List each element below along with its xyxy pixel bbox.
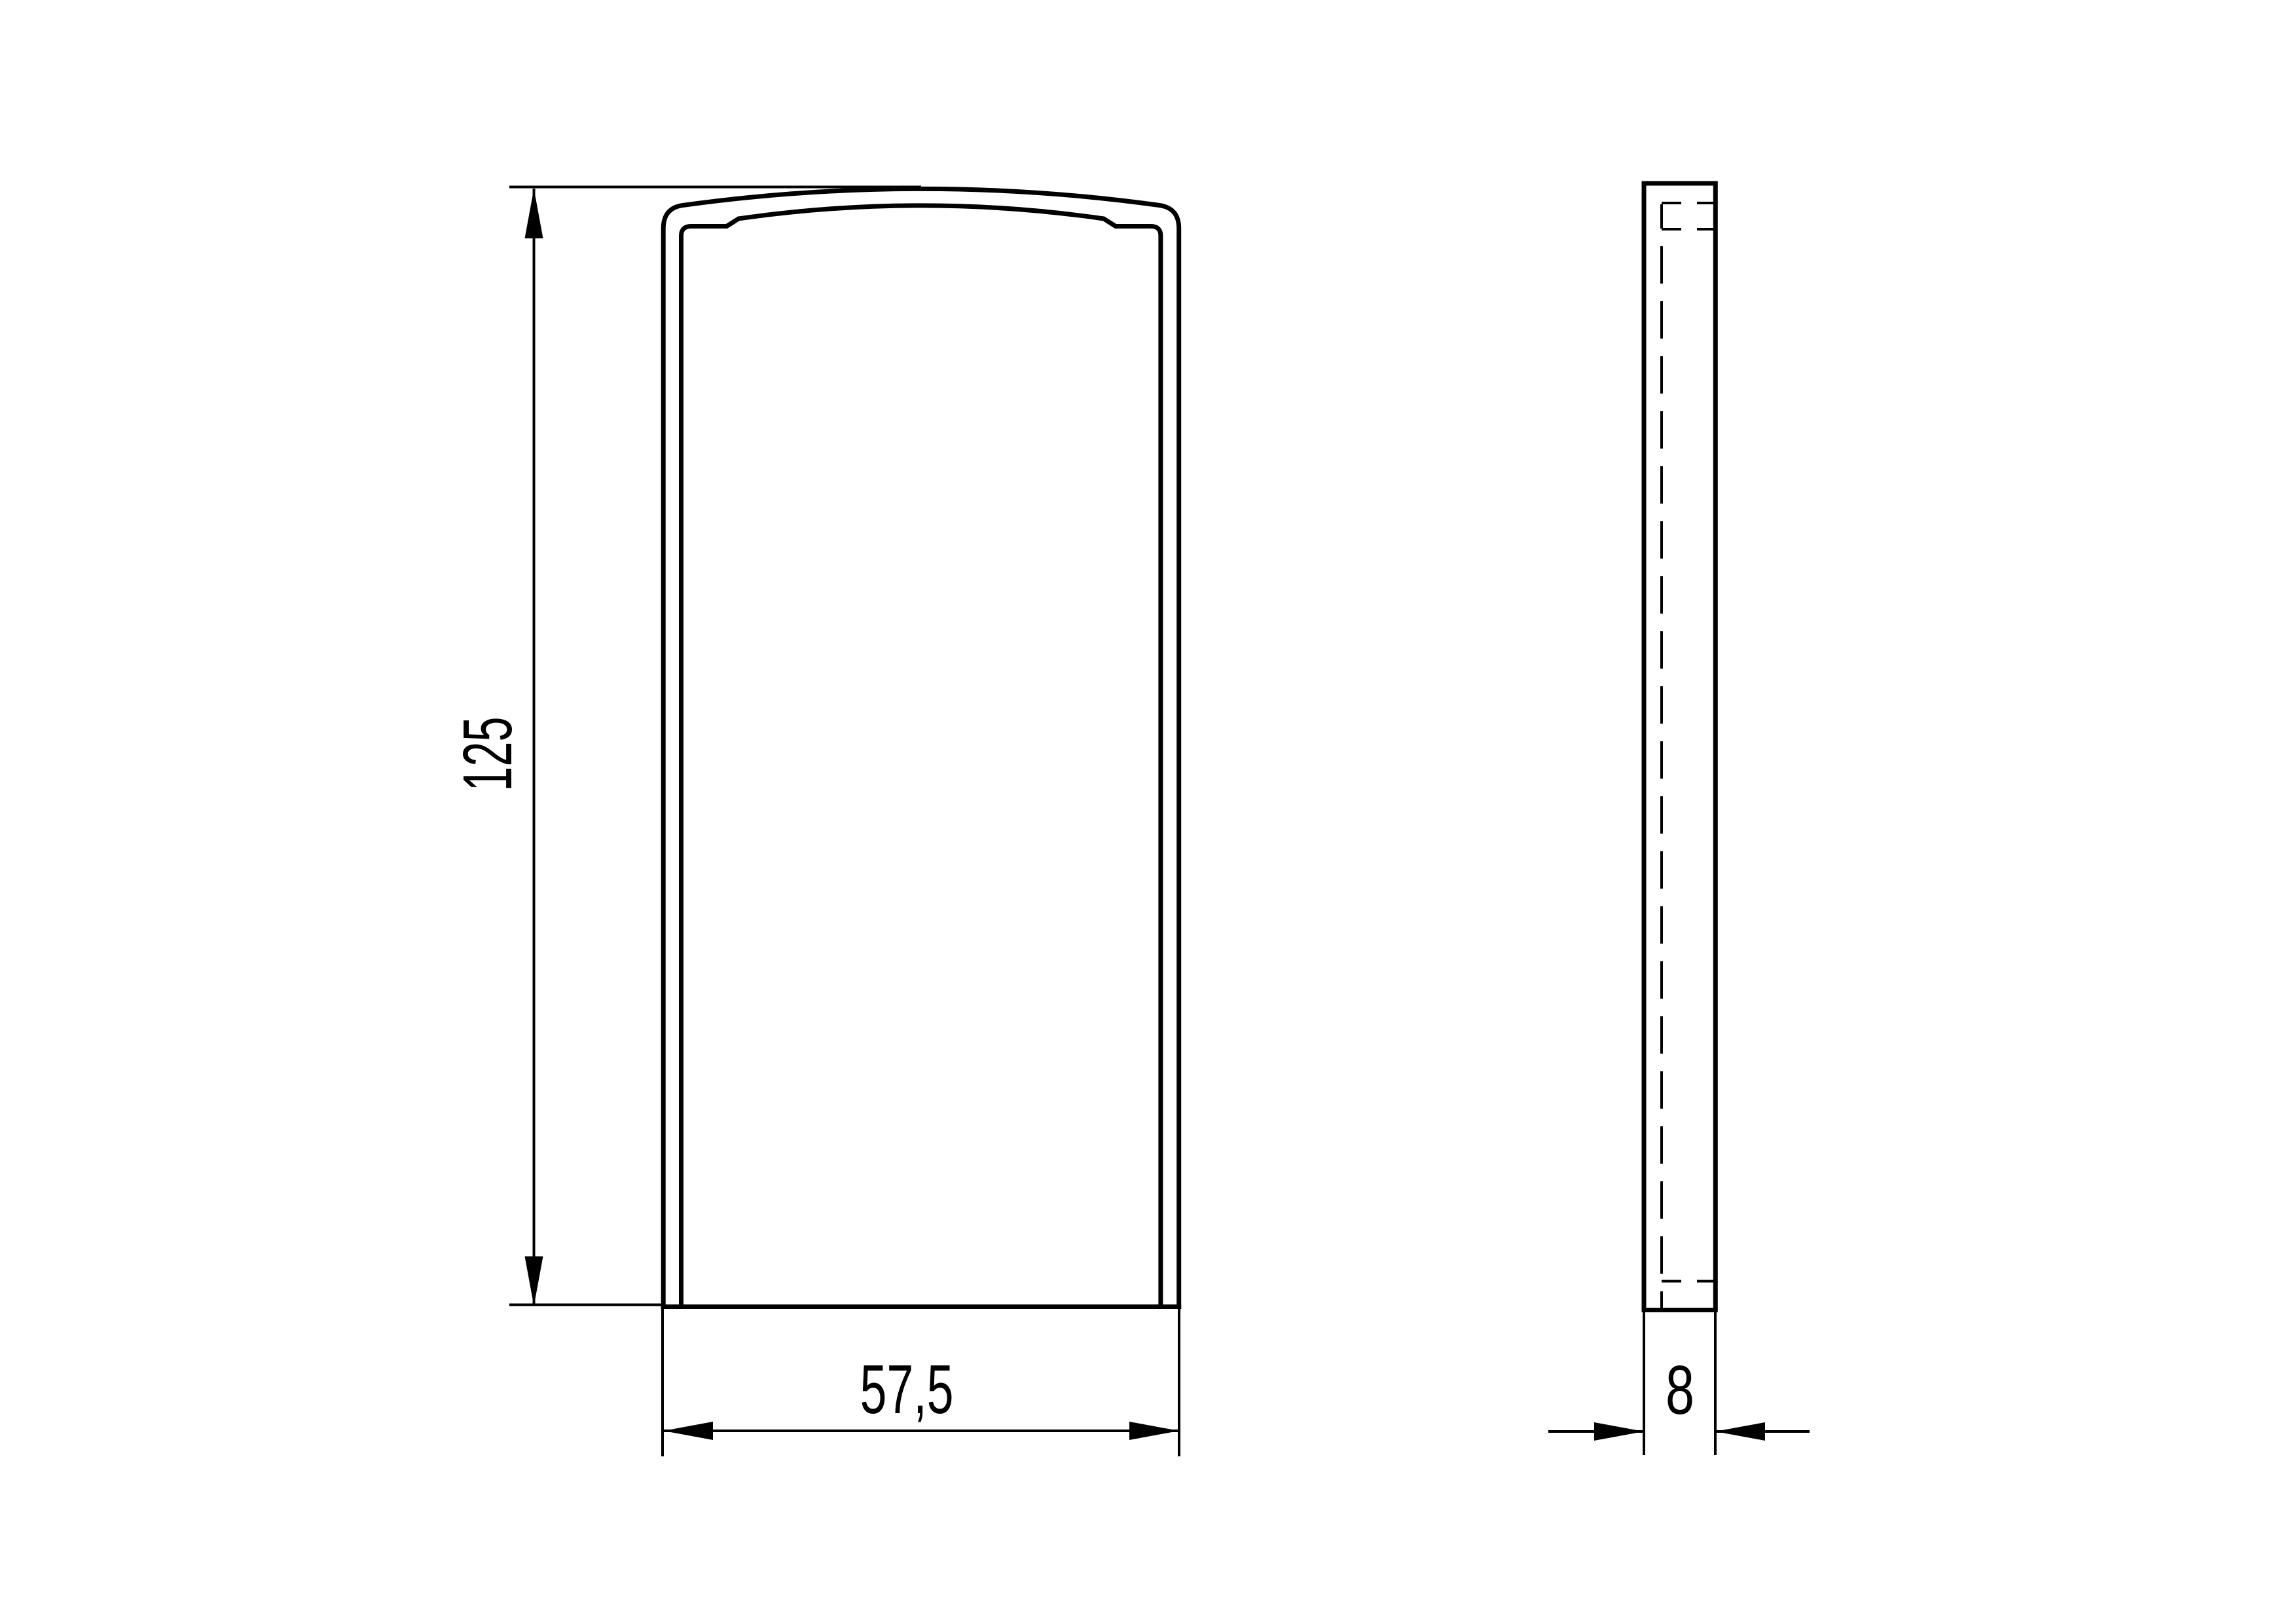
svg-text:125: 125 [449,717,526,792]
svg-text:8: 8 [1666,1352,1694,1429]
svg-text:57,5: 57,5 [860,1351,954,1428]
